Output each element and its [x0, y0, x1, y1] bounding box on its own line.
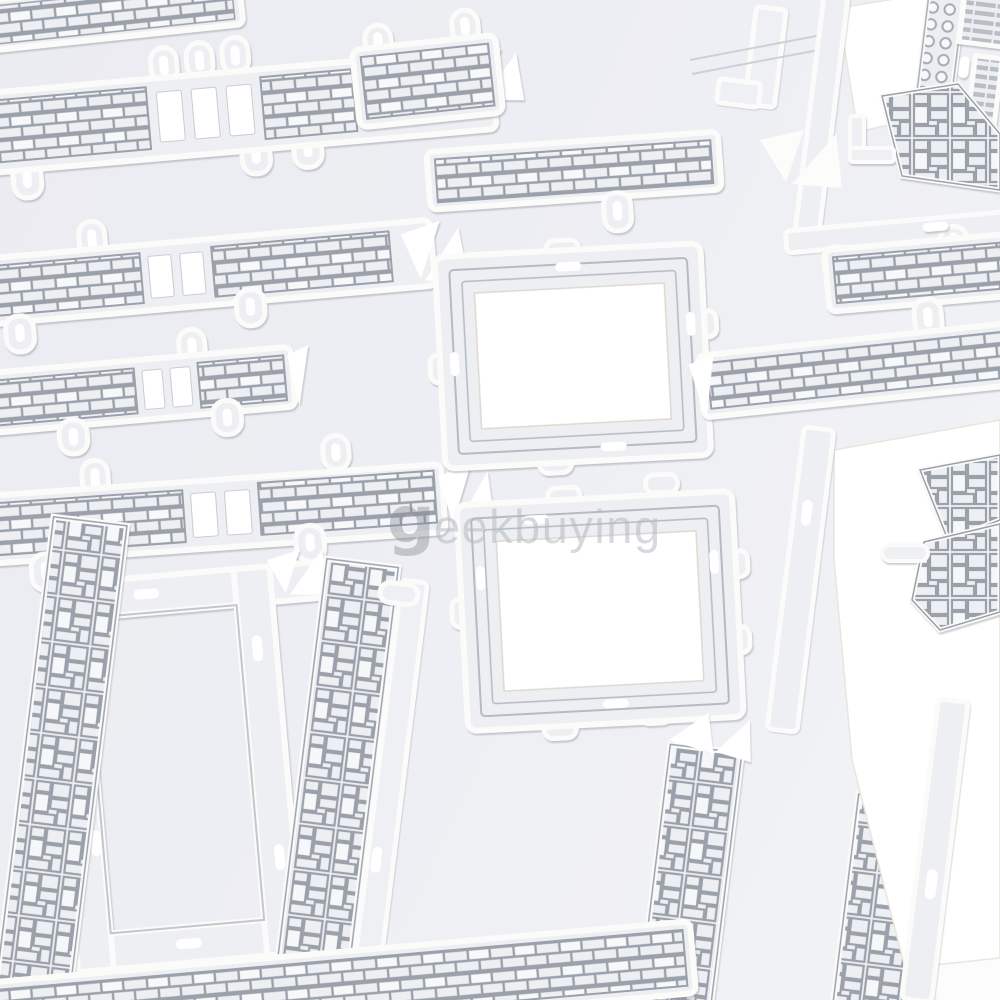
l-bracket: [850, 148, 894, 162]
frame-opening: [496, 531, 704, 691]
window-cuts: [156, 84, 255, 142]
wall-strip-e: [426, 132, 724, 244]
wall-strip-c: [0, 319, 316, 462]
brick-panel-c: [349, 7, 503, 127]
frame-left-bar: [767, 427, 834, 732]
square-frame-2: [445, 470, 756, 743]
top-brick-strip: [688, 323, 1000, 420]
hook-tab: [379, 581, 419, 605]
frame-left-bar: [794, 0, 849, 244]
frame-opening: [474, 283, 671, 429]
brick-panel: [260, 69, 357, 139]
one-shape-piece: [716, 3, 786, 109]
tab-bar: [882, 545, 928, 561]
metal-sheet-photo: [0, 0, 1000, 1000]
square-frame-1: [424, 233, 724, 480]
product-photo: g eekbuying: [0, 0, 1000, 1000]
wall-strip-b: [0, 189, 472, 356]
